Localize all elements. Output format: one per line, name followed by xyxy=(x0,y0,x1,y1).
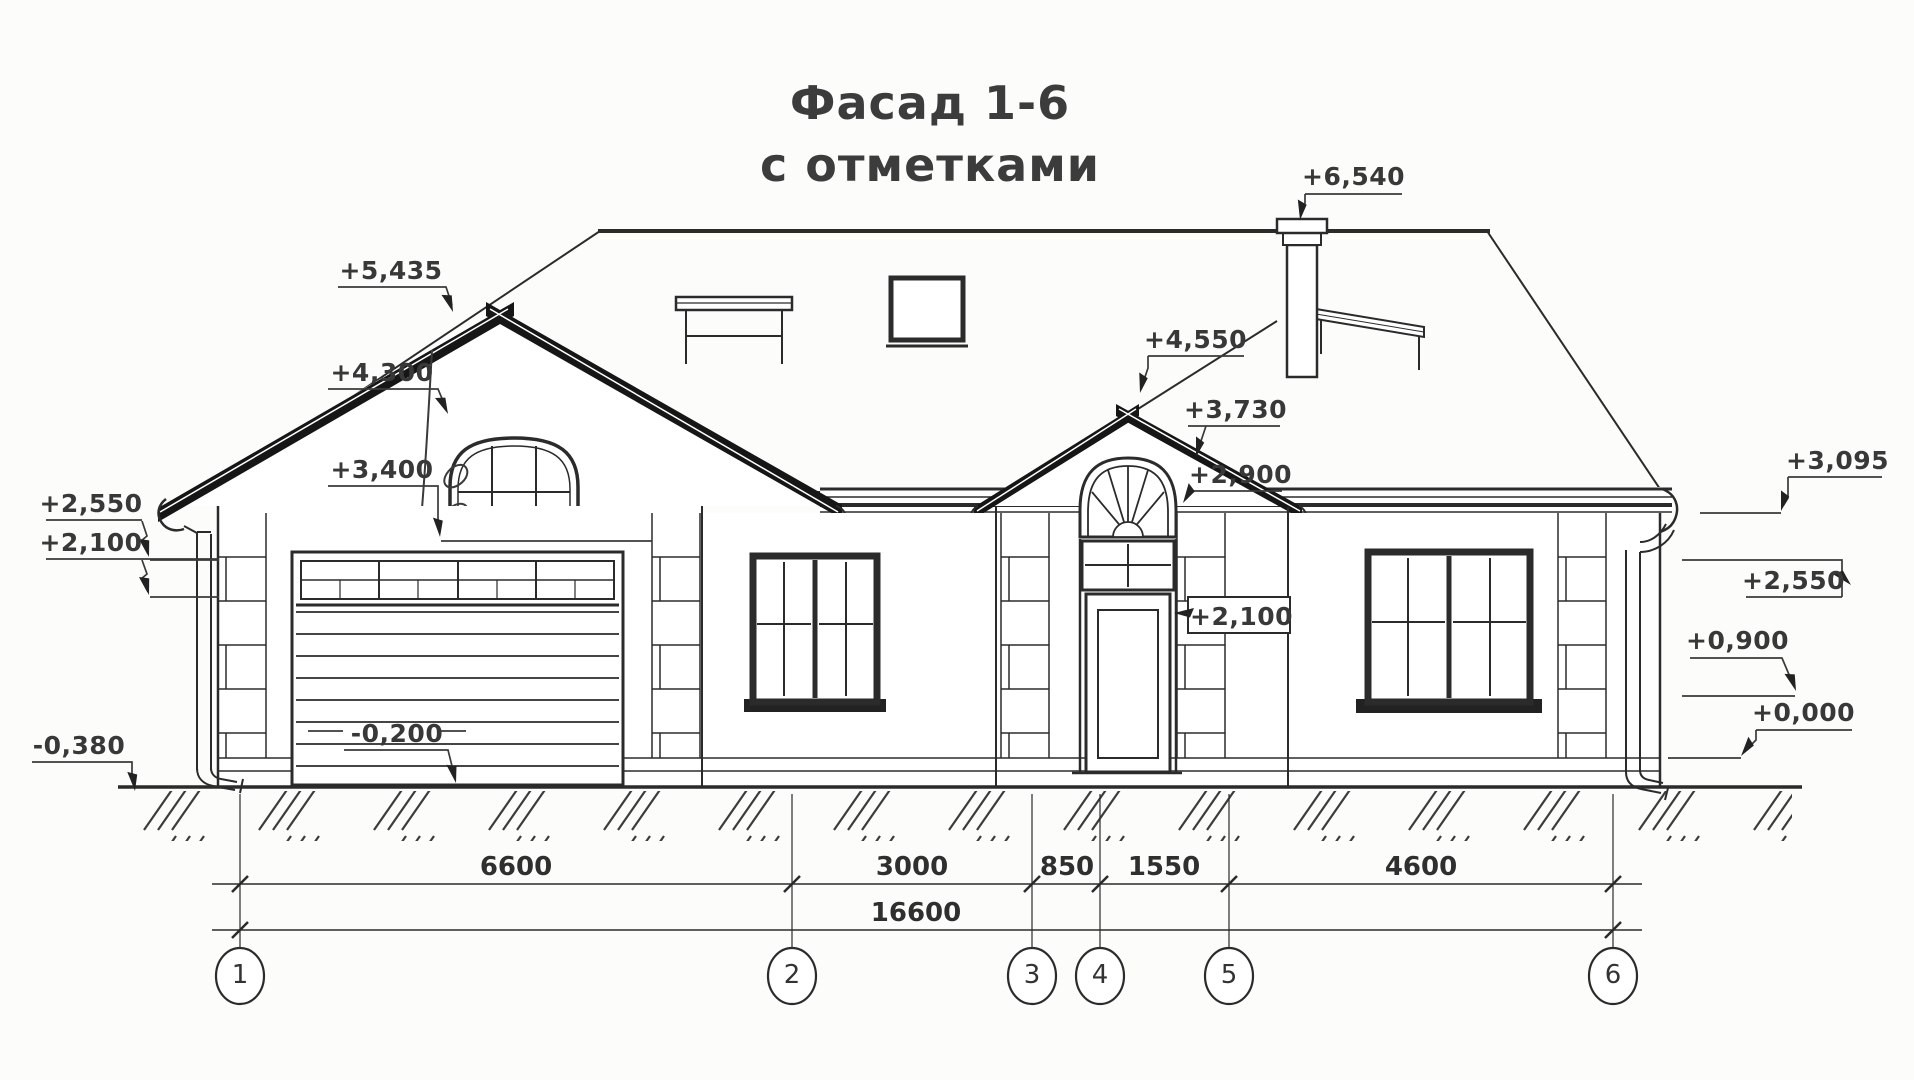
leader-4550 xyxy=(1135,356,1244,394)
elevation-mark-2900: +2,900 xyxy=(1189,460,1285,489)
elevation-mark-2100-left: +2,100 xyxy=(38,528,144,557)
leader-6540 xyxy=(1295,194,1402,221)
elevation-mark-0900: +0,900 xyxy=(1686,626,1784,655)
axis-bubble-1: 1 xyxy=(214,960,266,990)
axis-bubbles xyxy=(216,948,1637,1004)
elevation-mark-4300: +4,300 xyxy=(326,358,438,387)
elevation-mark-5435: +5,435 xyxy=(336,256,446,285)
elevation-mark-2550-right: +2,550 xyxy=(1742,566,1842,595)
right-window xyxy=(1356,552,1542,713)
dimension-axes-2-3: 3000 xyxy=(842,852,982,882)
axis-bubble-3: 3 xyxy=(1006,960,1058,990)
drawing-title-line2: с отметками xyxy=(680,138,1180,192)
facade-drawing-sheet: Фасад 1-6 с отметками +5,435 +4,300 +3,4… xyxy=(0,0,1914,1080)
drawing-title-line1: Фасад 1-6 xyxy=(680,76,1180,130)
leader-5435 xyxy=(338,287,457,314)
elevation-mark-minus-0380: -0,380 xyxy=(24,731,134,760)
skylight-window xyxy=(886,278,968,346)
ground-hatching xyxy=(128,791,1792,841)
fan-window xyxy=(1080,458,1176,537)
roof-vent-left xyxy=(676,297,792,364)
axis-bubble-2: 2 xyxy=(766,960,818,990)
elevation-mark-3730: +3,730 xyxy=(1184,395,1282,424)
chimney xyxy=(1277,219,1327,377)
leader-0000 xyxy=(1668,730,1852,759)
dimension-total: 16600 xyxy=(846,898,986,928)
axis-bubble-6: 6 xyxy=(1587,960,1639,990)
leader-0900 xyxy=(1682,658,1800,696)
garage-door xyxy=(292,552,623,785)
dimension-axes-5-6: 4600 xyxy=(1351,852,1491,882)
transom-window xyxy=(1082,541,1174,590)
leader-2100-left xyxy=(46,559,219,597)
elevation-mark-0000: +0,000 xyxy=(1752,698,1854,727)
elevation-mark-2100-center: +2,100 xyxy=(1190,602,1290,631)
axis-bubble-4: 4 xyxy=(1074,960,1126,990)
leader-3095 xyxy=(1700,477,1882,513)
elevation-mark-minus-0200: -0,200 xyxy=(344,719,450,748)
elevation-mark-6540: +6,540 xyxy=(1302,162,1404,191)
elevation-mark-3400: +3,400 xyxy=(326,455,438,484)
middle-window xyxy=(744,556,886,712)
roof-vent-right xyxy=(1316,309,1424,370)
dimension-axes-4-5: 1550 xyxy=(1094,852,1234,882)
elevation-mark-4550: +4,550 xyxy=(1144,325,1246,354)
axis-bubble-5: 5 xyxy=(1203,960,1255,990)
entrance-assembly xyxy=(1072,458,1182,773)
elevation-mark-3095: +3,095 xyxy=(1786,446,1884,475)
elevation-mark-2550-left: +2,550 xyxy=(38,489,144,518)
dimension-axes-1-2: 6600 xyxy=(446,852,586,882)
ground xyxy=(118,787,1802,841)
